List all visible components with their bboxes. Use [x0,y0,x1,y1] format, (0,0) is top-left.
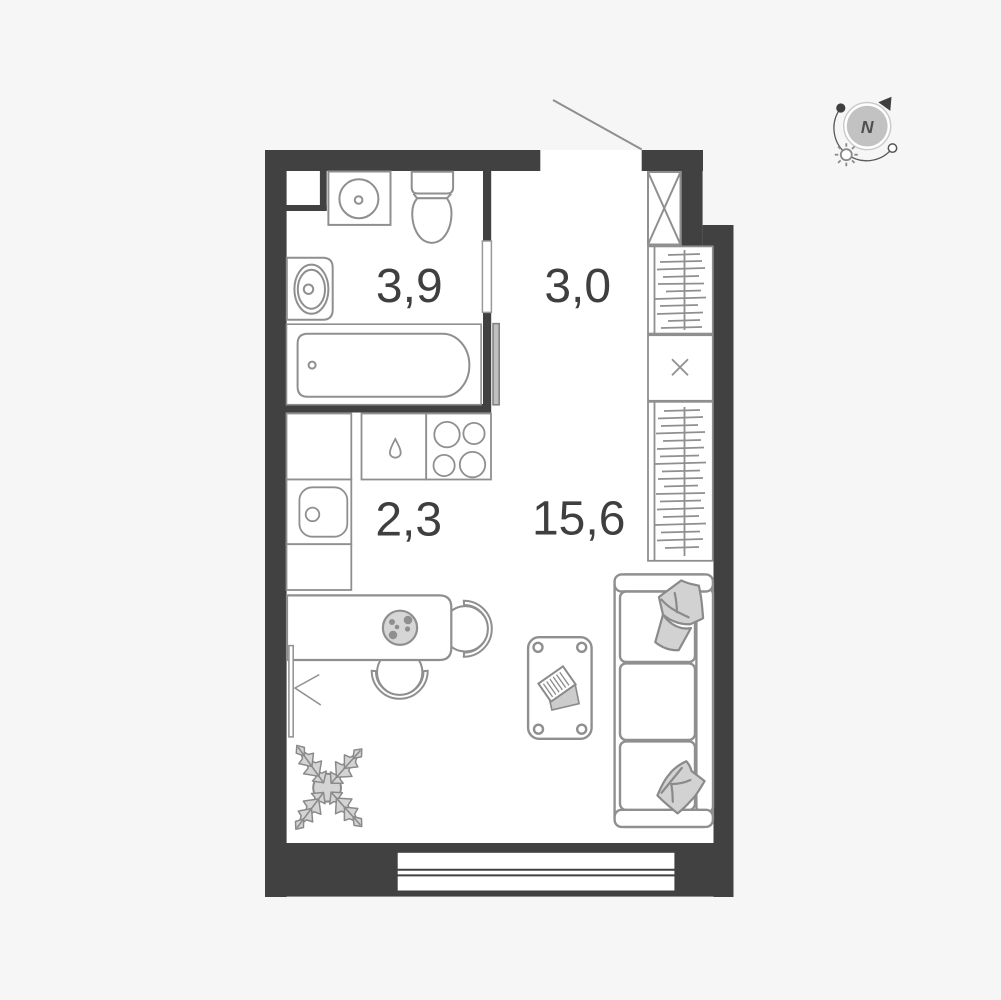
svg-text:N: N [861,117,874,137]
svg-text:15,6: 15,6 [532,493,625,546]
svg-text:2,3: 2,3 [375,494,442,547]
svg-text:3,9: 3,9 [376,260,443,313]
svg-text:3,0: 3,0 [544,260,611,313]
